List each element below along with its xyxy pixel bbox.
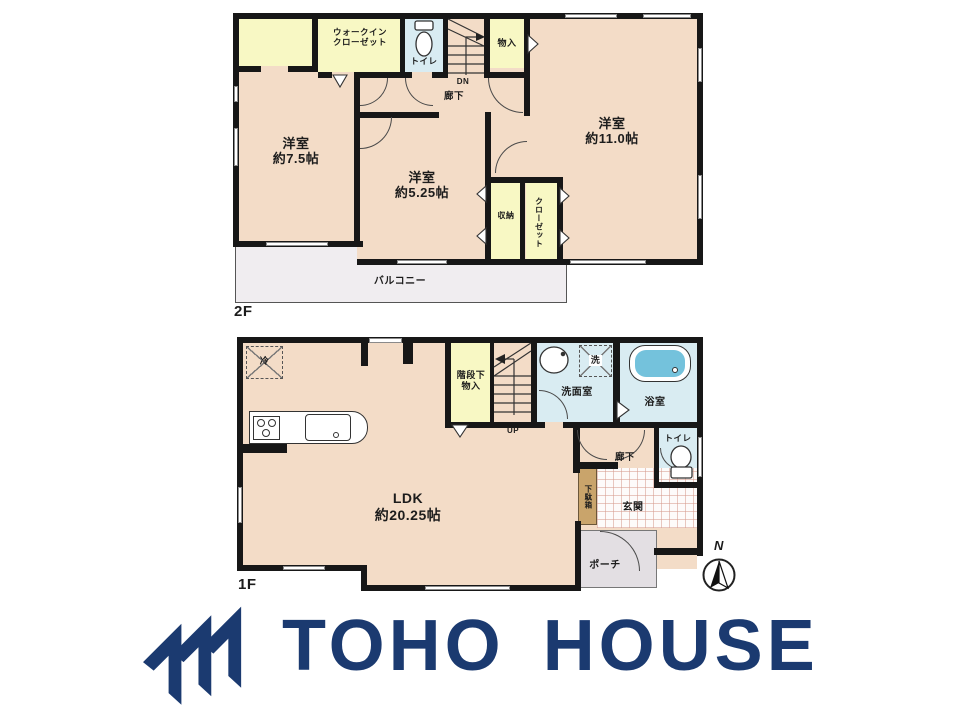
bifold-door-marker — [452, 425, 468, 437]
bath-door-marker — [617, 401, 629, 419]
2f-closet-small-label: 収納 — [489, 211, 523, 220]
stair-arrow — [476, 33, 485, 41]
staircase-up — [494, 343, 531, 415]
washbasin-icon — [540, 347, 568, 373]
washroom-label: 洗面室 — [548, 387, 606, 399]
shoe-cabinet-label: 下駄箱 — [583, 474, 592, 520]
porch-label: ポーチ — [580, 560, 630, 572]
toilet-icon — [415, 21, 433, 56]
logo-text: TOHO HOUSE — [282, 598, 819, 694]
1f-toilet-label: トイレ — [658, 433, 698, 443]
balcony-label: バルコニー — [340, 276, 460, 288]
bedroom-75-label: 洋室約7.5帖 — [246, 136, 346, 167]
toilet-icon — [671, 446, 692, 478]
entrance-label: 玄関 — [608, 502, 658, 514]
1f-hallway-label: 廊下 — [601, 452, 649, 463]
compass: N — [698, 538, 740, 594]
2f-hallway-label: 廊下 — [430, 91, 478, 102]
floor-plan-page: { "floor2": { "label": "2F", "bedroom_a"… — [0, 0, 960, 720]
staircase-down — [448, 19, 484, 75]
walk-in-closet-label: ウォークインクローゼット — [319, 27, 401, 47]
2f-storage-label: 物入 — [489, 38, 525, 49]
bedroom-525-label: 洋室約5.25帖 — [372, 170, 472, 201]
2f-dn-label: DN — [448, 77, 478, 86]
under-stair-storage-label: 階段下物入 — [448, 370, 494, 391]
bedroom-110-label: 洋室約11.0帖 — [562, 116, 662, 147]
bathroom-label: 浴室 — [633, 397, 677, 409]
ldk-label: LDK約20.25帖 — [358, 490, 458, 523]
compass-icon — [698, 538, 740, 594]
logo-mark-icon — [143, 598, 271, 722]
floor-1f-label: 1F — [238, 576, 268, 594]
1f-up-label: UP — [498, 426, 528, 435]
2f-closet-label: クローゼット — [534, 188, 543, 256]
floor-2f-label: 2F — [234, 303, 264, 321]
2f-toilet-label: トイレ — [403, 56, 445, 66]
